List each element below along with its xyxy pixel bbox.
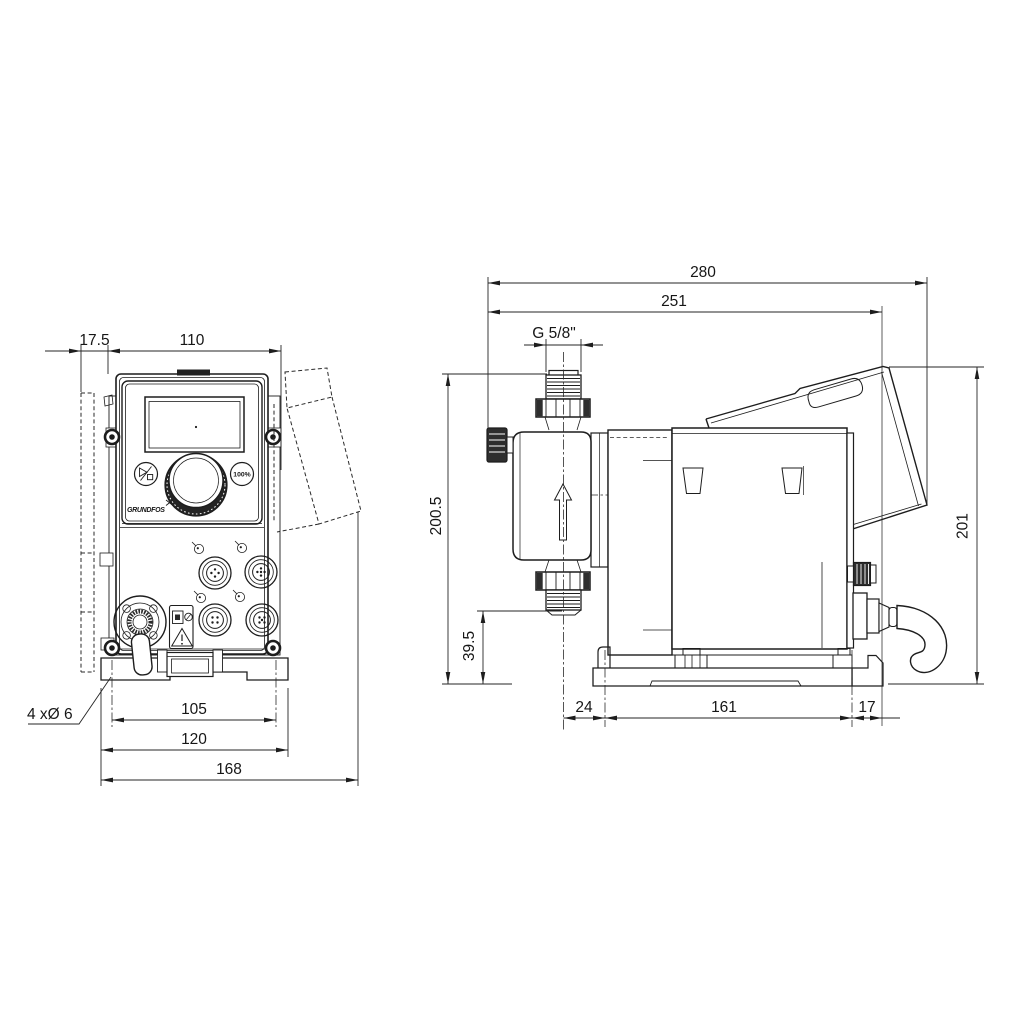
front-wall-plate-hidden <box>81 393 94 672</box>
dim-overall-width: 168 <box>216 761 242 778</box>
click-wheel[interactable] <box>165 454 227 517</box>
dimensional-drawing: 100% GRUNDFOS <box>0 0 1024 1024</box>
holes-callout: 4 xØ 6 <box>27 706 73 723</box>
dim-rear-height: 201 <box>955 513 972 539</box>
dim-plate-offset: 17.5 <box>79 332 109 349</box>
dim-connection-thread: G 5/8" <box>532 325 575 342</box>
bottom-union-nut <box>536 572 590 590</box>
side-m12-connector <box>848 563 877 586</box>
top-tab <box>177 370 210 376</box>
dim-total-height: 200.5 <box>428 497 445 536</box>
dim-depth-to-bracket: 251 <box>661 293 687 310</box>
vent-knob <box>487 428 507 462</box>
top-union-nut <box>536 399 590 417</box>
screw <box>105 430 119 444</box>
dim-hole-span: 105 <box>181 701 207 718</box>
dim-plate-width: 120 <box>181 731 207 748</box>
screw <box>266 430 280 444</box>
side-view: 280 251 G 5/8" 200.5 39.5 <box>428 264 984 731</box>
capacity-button-label: 100% <box>233 472 250 479</box>
screw <box>105 641 119 655</box>
dim-base-rear-offset: 17 <box>858 699 875 716</box>
front-mounting-bracket-hidden <box>274 368 361 532</box>
bracket-foot <box>852 656 883 687</box>
drawing-canvas: 100% GRUNDFOS <box>0 0 1024 1024</box>
dim-base-length: 161 <box>711 699 737 716</box>
motor-housing <box>672 428 847 649</box>
front-view: 100% GRUNDFOS <box>27 332 361 786</box>
base-plate <box>593 668 852 686</box>
grundfos-logo-text: GRUNDFOS <box>127 507 165 514</box>
side-cable-gland <box>853 593 947 673</box>
dosing-head <box>487 352 591 731</box>
screw <box>266 641 280 655</box>
display-dot <box>195 426 197 428</box>
power-cable <box>897 606 947 673</box>
dim-overall-depth: 280 <box>690 264 716 281</box>
dim-base-front-offset: 24 <box>575 699 593 716</box>
warning-label <box>170 606 194 649</box>
dim-valve-height: 39.5 <box>461 631 478 661</box>
din-rail-clip <box>158 650 223 677</box>
dim-body-width: 110 <box>180 332 205 349</box>
mid-housing <box>608 430 672 655</box>
side-housing <box>588 428 854 655</box>
power-cable <box>131 633 153 676</box>
